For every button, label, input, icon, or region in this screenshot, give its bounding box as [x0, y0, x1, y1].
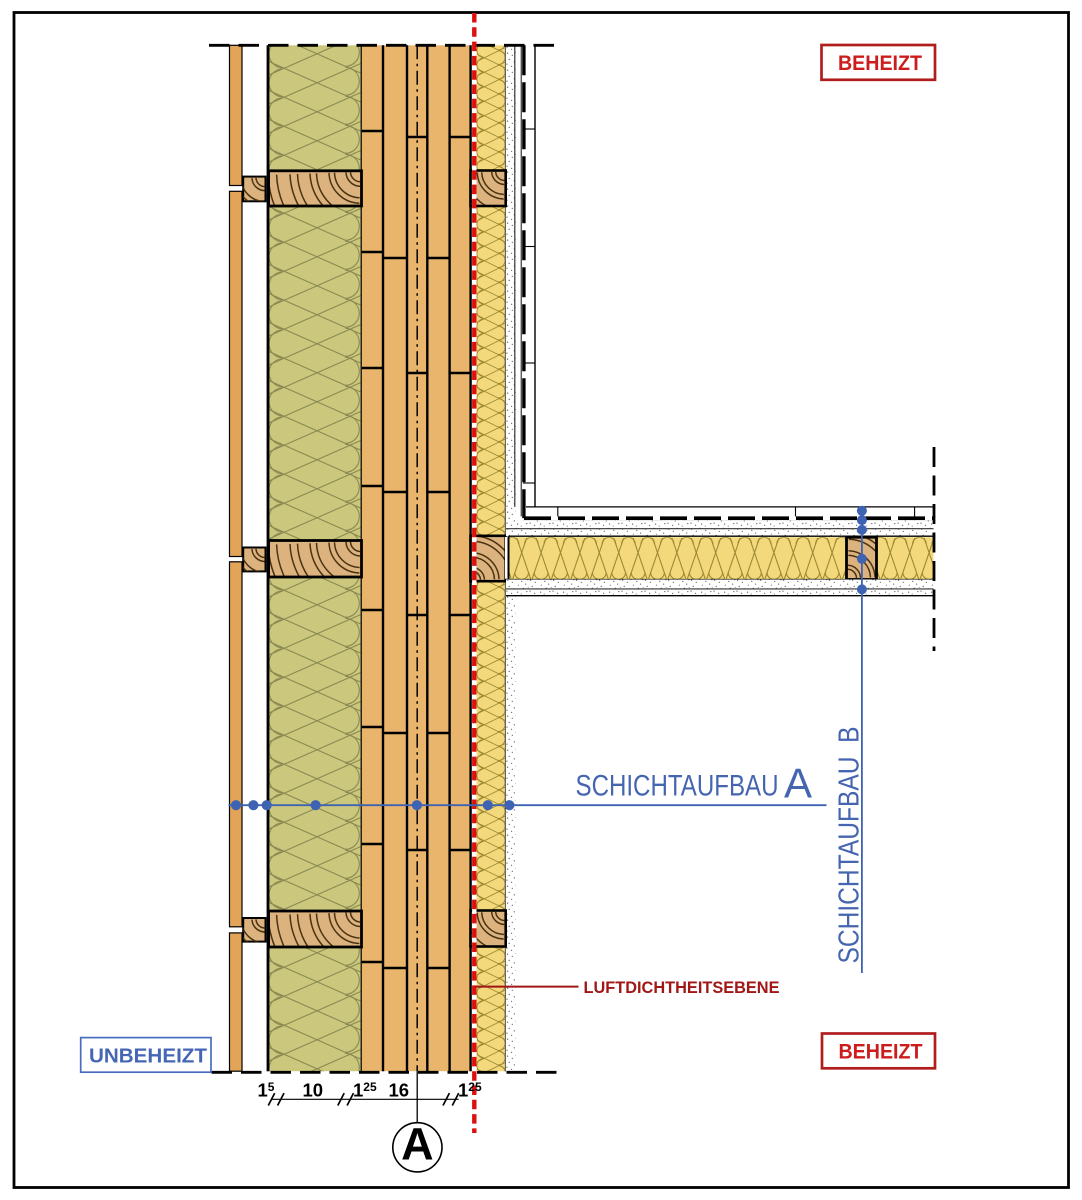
- svg-text:16: 16: [389, 1080, 410, 1101]
- svg-text:SCHICHTAUFBAU B: SCHICHTAUFBAU B: [834, 727, 866, 964]
- svg-text:A: A: [784, 760, 812, 807]
- svg-text:LUFTDICHTHEITSEBENE: LUFTDICHTHEITSEBENE: [584, 979, 780, 997]
- svg-text:SCHICHTAUFBAU: SCHICHTAUFBAU: [576, 770, 779, 803]
- svg-text:BEHEIZT: BEHEIZT: [839, 1041, 923, 1064]
- svg-text:A: A: [401, 1119, 434, 1170]
- svg-text:10: 10: [303, 1080, 324, 1101]
- svg-text:BEHEIZT: BEHEIZT: [838, 52, 922, 75]
- svg-text:UNBEHEIZT: UNBEHEIZT: [89, 1045, 207, 1067]
